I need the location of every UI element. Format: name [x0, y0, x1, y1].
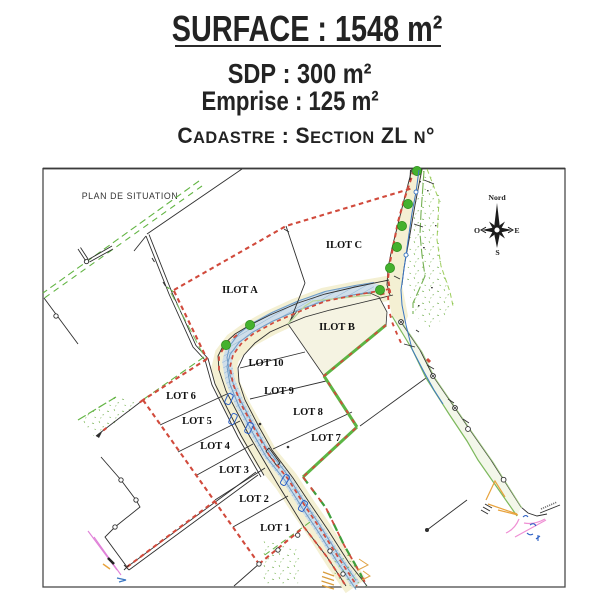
svg-text:Nord: Nord: [488, 193, 506, 202]
svg-text:LOT 3: LOT 3: [219, 465, 249, 476]
svg-text:LOT 8: LOT 8: [293, 407, 323, 418]
svg-text:O: O: [474, 226, 480, 235]
svg-text:ILOT B: ILOT B: [319, 322, 355, 333]
svg-text:LOT 10: LOT 10: [248, 358, 283, 369]
svg-text:LOT 9: LOT 9: [264, 386, 294, 397]
svg-text:LOT 1: LOT 1: [260, 523, 290, 534]
svg-text:PLAN DE SITUATION: PLAN DE SITUATION: [82, 191, 179, 201]
svg-text:E: E: [514, 226, 519, 235]
svg-text:LOT 2: LOT 2: [239, 494, 269, 505]
svg-text:LOT 4: LOT 4: [200, 441, 231, 452]
svg-text:LOT 6: LOT 6: [166, 391, 196, 402]
svg-text:ILOT A: ILOT A: [222, 285, 258, 296]
svg-text:LOT 7: LOT 7: [311, 433, 341, 444]
svg-text:ILOT C: ILOT C: [326, 240, 362, 251]
svg-text:S: S: [495, 248, 499, 257]
svg-text:LOT 5: LOT 5: [182, 416, 212, 427]
